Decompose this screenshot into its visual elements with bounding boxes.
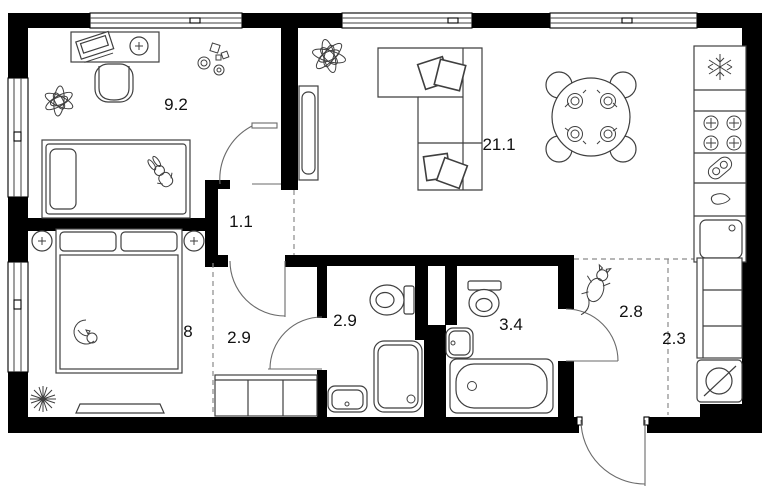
children-room	[42, 32, 229, 218]
window-kitchen	[550, 13, 697, 28]
bathroom	[446, 281, 553, 413]
kitchen-counter	[694, 46, 746, 262]
label-bedroom: 8	[183, 322, 192, 341]
label-children-room: 9.2	[164, 95, 188, 114]
dining-table	[546, 72, 636, 162]
window-children-left	[8, 78, 28, 197]
toilet	[468, 281, 501, 317]
window-bedroom-left	[8, 262, 28, 372]
door-children-room	[220, 123, 281, 184]
sconce-right-icon	[184, 231, 204, 251]
label-hallway: 2.9	[227, 328, 251, 347]
window-children-room	[90, 13, 242, 28]
label-bathroom: 3.4	[499, 315, 523, 334]
sconce-left-icon	[32, 231, 52, 251]
plant-starburst-icon	[30, 386, 56, 412]
label-shower-room: 2.9	[333, 311, 357, 330]
label-living-kitchen: 21.1	[482, 135, 515, 154]
plant-icon	[43, 86, 74, 117]
toilet	[370, 285, 414, 315]
single-bed	[42, 140, 190, 218]
bathtub	[450, 359, 553, 413]
label-inner-hall: 1.1	[229, 212, 253, 231]
washing-machine-icon	[697, 360, 742, 402]
closet	[215, 375, 317, 416]
floor-plan-canvas: 9.2 21.1 1.1 8 2.9 2.9 3.4 2.8 2.3	[0, 0, 770, 500]
door-hallway	[230, 261, 285, 317]
shower-room	[328, 285, 422, 412]
floor-plan: 9.2 21.1 1.1 8 2.9 2.9 3.4 2.8 2.3	[0, 0, 770, 500]
label-entry-hall: 2.8	[619, 302, 643, 321]
wardrobe	[697, 258, 742, 358]
double-bed	[56, 229, 182, 373]
kitchen-sink	[700, 220, 742, 258]
living-kitchen	[299, 38, 746, 262]
chair	[95, 64, 133, 102]
label-corridor: 2.3	[662, 329, 686, 348]
window-living-room	[342, 13, 472, 28]
tv	[299, 86, 318, 180]
sofa	[378, 48, 482, 190]
entry-corridor	[575, 258, 742, 402]
entrance-door	[577, 417, 649, 486]
hallway	[215, 375, 317, 416]
door-shower-room	[268, 317, 322, 369]
door-bathroom	[566, 309, 618, 361]
wall-shelf	[76, 404, 164, 413]
shower-cabin	[374, 341, 422, 412]
washbasin	[328, 386, 367, 412]
toys-icon	[198, 43, 229, 75]
desk-lamp-icon	[130, 37, 148, 55]
plant-icon	[311, 38, 347, 74]
washbasin	[446, 328, 473, 358]
bedroom	[30, 229, 204, 413]
